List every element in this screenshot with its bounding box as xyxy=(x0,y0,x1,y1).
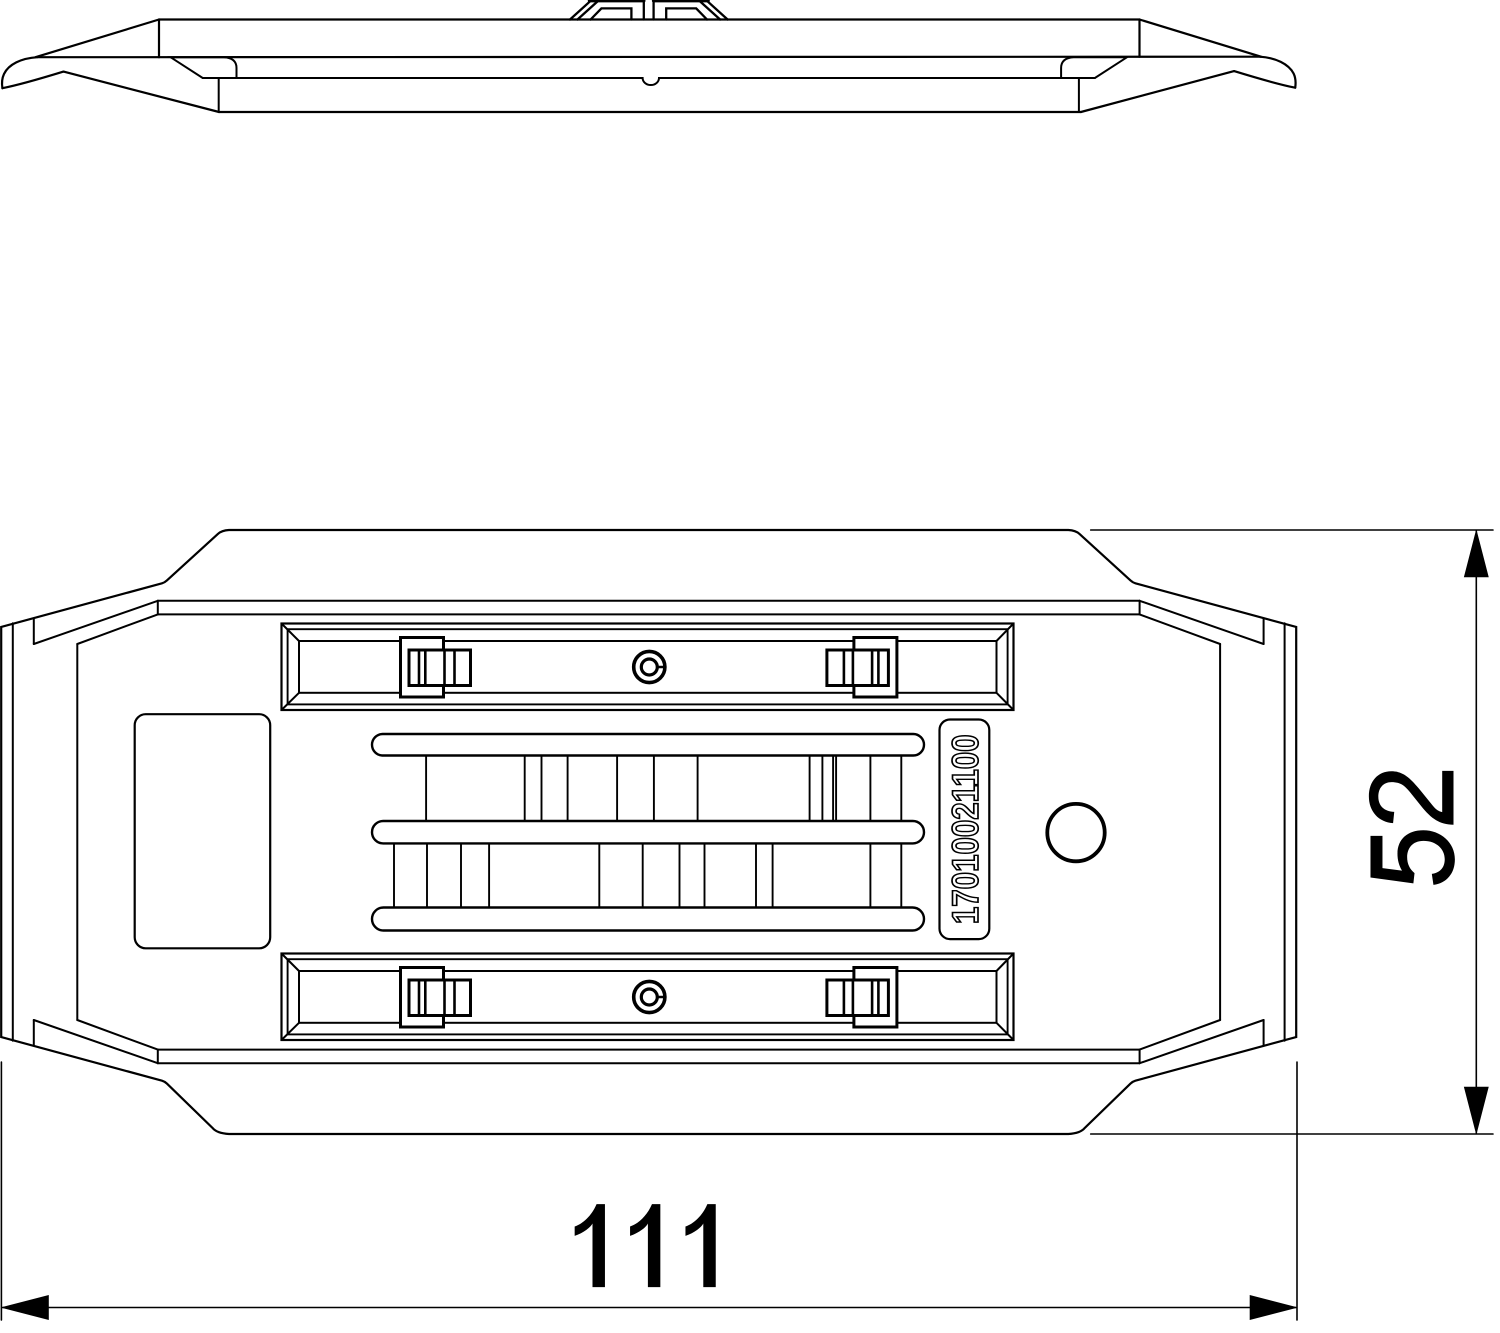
svg-text:17010021100: 17010021100 xyxy=(945,734,986,924)
